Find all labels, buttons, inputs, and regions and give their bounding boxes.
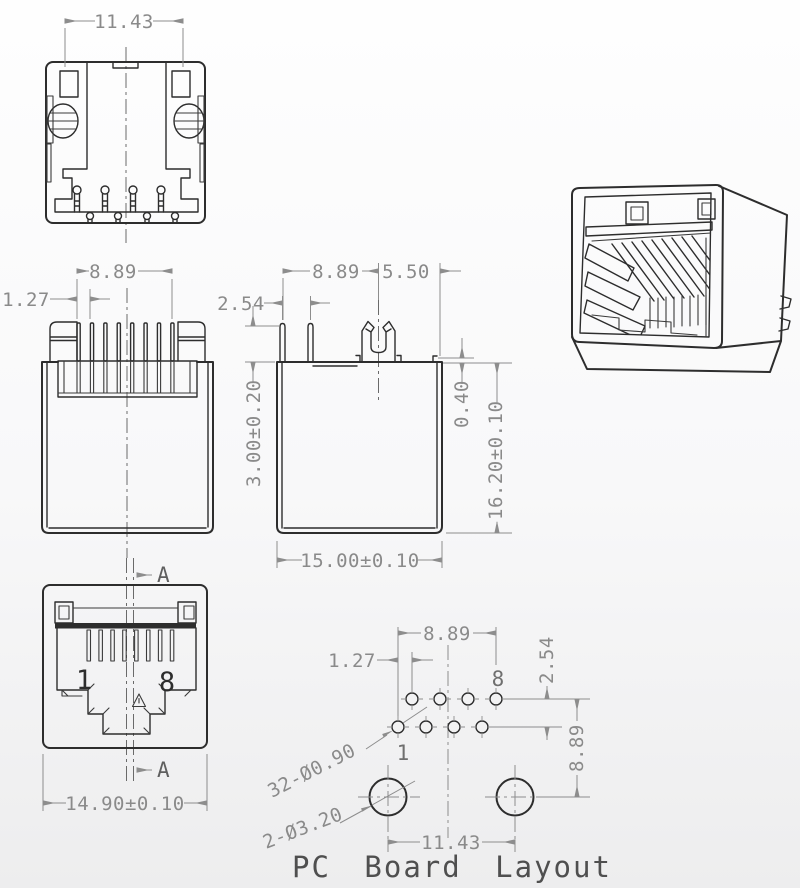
rear-latch-window-left <box>60 71 78 97</box>
view-top: 8.89 1.27 <box>2 261 213 558</box>
iso-left-ledges <box>584 244 645 339</box>
side-body-inner <box>282 363 437 528</box>
iso-contact-blades <box>612 236 734 301</box>
iso-side-and-bottom-faces <box>572 186 787 372</box>
rear-width-dimension: 11.43 <box>65 11 183 67</box>
front-pin8-number: 8 <box>159 667 175 698</box>
top-span-label: 8.89 <box>89 261 137 283</box>
side-pin-pitch-dimension: 2.54 <box>217 293 330 320</box>
view-pcb-layout: 8.89 1.27 2.54 8.89 8 1 32-Ø0.90 <box>260 623 590 854</box>
pcb-mount-drop-label: 8.89 <box>566 724 588 772</box>
side-depth-dimension: 15.00±0.10 <box>277 541 442 572</box>
side-lip-label: 0.40 <box>451 380 473 428</box>
side-height-label: 16.20±0.10 <box>485 401 507 520</box>
section-label-bottom: A <box>157 758 170 782</box>
pcb-pin8-label: 8 <box>492 667 505 691</box>
top-contact-teeth <box>77 323 174 361</box>
front-pin1-number: 1 <box>76 665 92 696</box>
top-pitch-label: 1.27 <box>2 289 50 311</box>
view-front: 1 8 A A 14.90±0.10 <box>43 558 207 815</box>
caution-triangle-icon <box>133 694 146 707</box>
front-section-marker-bottom: A <box>137 758 170 782</box>
iso-contact-comb <box>650 295 706 328</box>
section-label-top: A <box>157 563 170 587</box>
iso-port-interior <box>584 233 734 339</box>
side-solder-pins <box>280 324 313 363</box>
view-isometric <box>572 185 791 372</box>
side-depth-label: 15.00±0.10 <box>300 550 419 572</box>
connector-drawing-canvas: 11.43 8.89 1.27 <box>0 0 800 888</box>
pcb-pin1-label: 1 <box>397 741 410 765</box>
pcb-row-offset-label: 1.27 <box>328 650 376 672</box>
iso-latch-windows <box>626 199 715 224</box>
pcb-row-gap-label: 2.54 <box>536 636 558 684</box>
side-pin-pitch-label: 2.54 <box>217 293 265 315</box>
rear-screw-post-right <box>174 104 204 138</box>
side-span-label: 8.89 <box>312 261 360 283</box>
front-section-lines <box>127 558 134 783</box>
pcb-row-span-dimension: 8.89 <box>398 623 496 716</box>
rear-latch-window-right <box>172 71 190 97</box>
iso-bottom-steps <box>592 238 706 336</box>
top-pitch-dimension: 1.27 <box>2 289 110 319</box>
front-width-dimension: 14.90±0.10 <box>43 754 207 815</box>
pcb-row-offset-dimension: 1.27 <box>328 650 433 690</box>
side-body-outline <box>277 362 442 533</box>
side-pin-length-dimension: 3.00±0.20 <box>243 306 279 487</box>
view-rear: 11.43 <box>46 11 205 243</box>
pcb-contact-holes <box>387 688 507 738</box>
side-span-dimension: 8.89 5.50 <box>283 261 461 356</box>
pcb-mount-holes-label: 2-Ø3.20 <box>260 803 346 853</box>
front-width-label: 14.90±0.10 <box>65 793 184 815</box>
front-section-marker-top: A <box>137 563 170 587</box>
top-span-dimension: 8.89 <box>77 261 172 319</box>
pcb-mount-drop-dimension: 8.89 <box>536 699 590 797</box>
page: { "title": "PC Board Layout", "colors": … <box>0 0 800 888</box>
rear-pin-short <box>87 213 179 224</box>
pcb-row-span-label: 8.89 <box>423 623 471 645</box>
side-back-label: 5.50 <box>382 261 430 283</box>
rear-pin-tall <box>73 186 165 212</box>
rear-width-label: 11.43 <box>94 11 154 33</box>
view-side: 8.89 5.50 2.54 3.00±0.20 0.40 16.20±0.10 <box>217 261 512 572</box>
front-body-outline <box>43 585 207 748</box>
drawing-title: PC Board Layout <box>292 850 612 884</box>
pcb-contact-holes-label: 32-Ø0.90 <box>264 739 359 802</box>
side-pin-length-label: 3.00±0.20 <box>243 380 265 487</box>
front-contact-slots <box>87 630 174 661</box>
